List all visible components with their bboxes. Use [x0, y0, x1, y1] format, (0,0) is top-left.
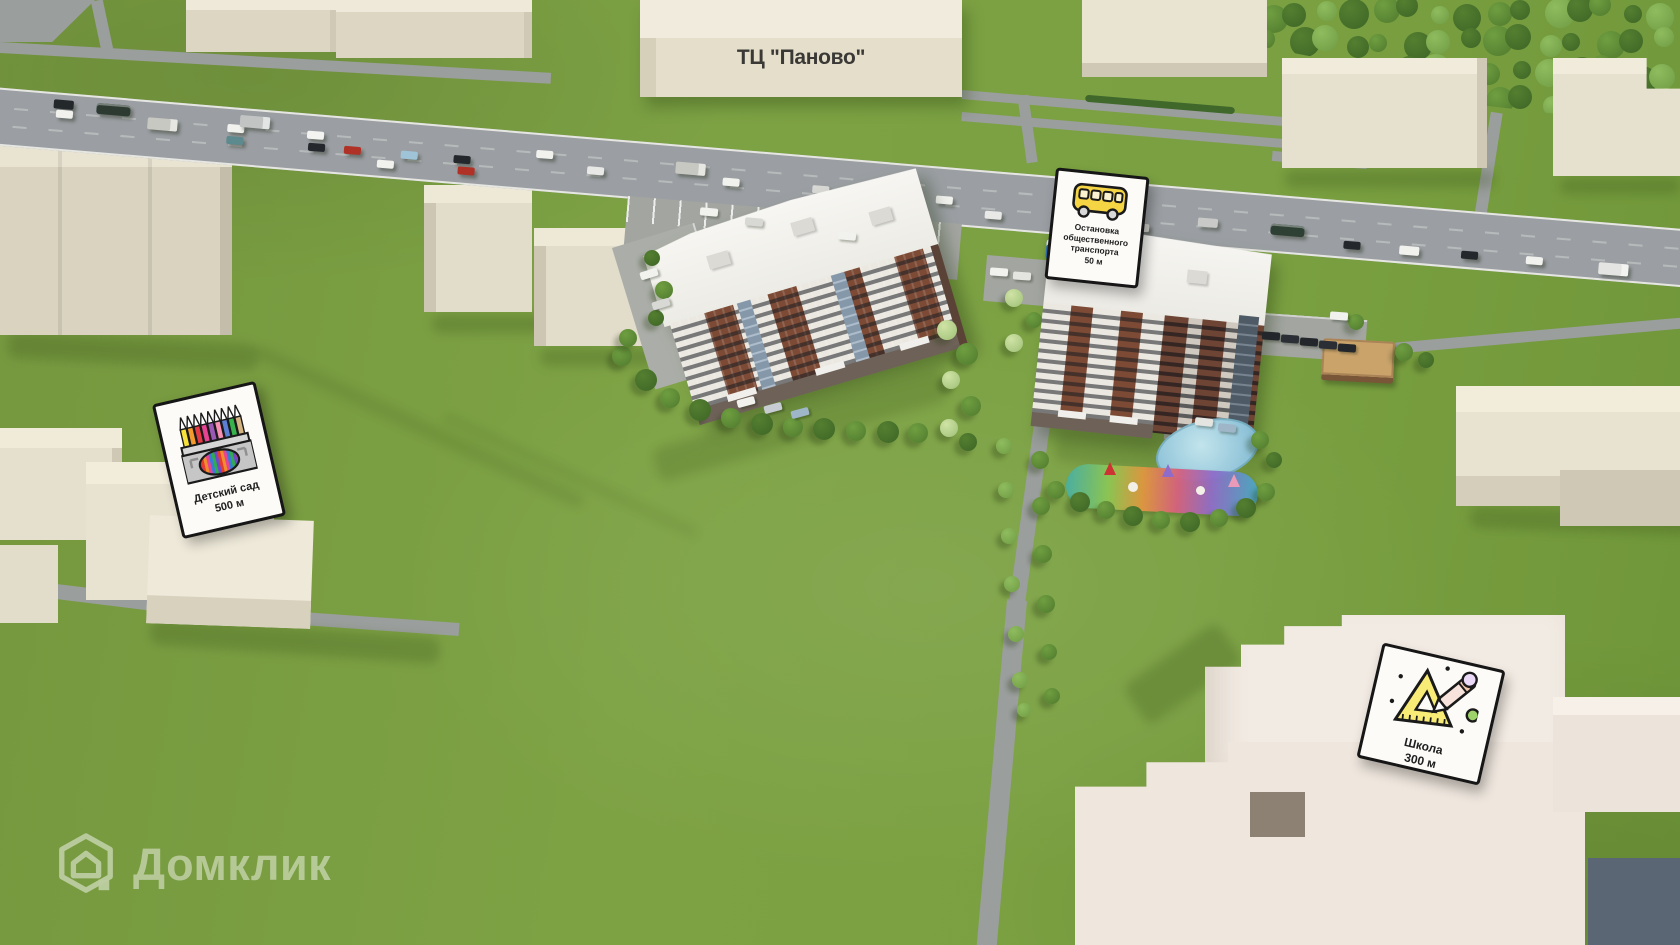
- vehicle-van: [53, 99, 74, 110]
- mall-building: ТЦ "Паново": [640, 0, 962, 97]
- tree: [1017, 703, 1031, 717]
- tree: [689, 399, 711, 421]
- building-block: [1553, 697, 1680, 812]
- forest-tree: [1236, 92, 1258, 114]
- shadow: [1285, 170, 1495, 188]
- facade-left: [1032, 303, 1165, 427]
- parked-car: [700, 207, 719, 217]
- tree: [1348, 314, 1364, 330]
- road-corner: [0, 0, 95, 42]
- forest-tree: [1347, 36, 1369, 58]
- tree: [1257, 483, 1275, 501]
- watermark: Домклик: [55, 833, 331, 897]
- forest-tree: [1649, 64, 1675, 90]
- vehicle-car: [377, 159, 395, 168]
- forest-tree: [1624, 5, 1642, 23]
- play-cone: [1228, 474, 1240, 487]
- vehicle-bus: [1270, 224, 1305, 238]
- parked-car: [1330, 311, 1349, 320]
- crayons-icon: [170, 393, 259, 489]
- entrance-canopy: [1058, 410, 1087, 420]
- vehicle-car: [400, 150, 418, 159]
- play-cone: [1104, 462, 1116, 475]
- building-block: [1560, 470, 1680, 526]
- building-block: [336, 0, 532, 58]
- vehicle-truck: [1598, 262, 1629, 276]
- watermark-text: Домклик: [133, 839, 331, 891]
- parked-car: [745, 217, 764, 227]
- entrance-canopy: [1109, 415, 1138, 425]
- building-block: [186, 0, 338, 52]
- tree: [1004, 576, 1020, 592]
- tree: [660, 388, 680, 408]
- tree: [942, 371, 960, 389]
- bus-icon: [1069, 181, 1130, 223]
- vehicle-car: [457, 166, 475, 175]
- tree: [1180, 512, 1200, 532]
- tree: [956, 343, 978, 365]
- central-path-lower: [976, 599, 1027, 945]
- tree: [1236, 498, 1256, 518]
- vehicle-van: [1198, 217, 1219, 228]
- building-block-kindergarten: [146, 515, 314, 629]
- tree: [908, 423, 928, 443]
- building-block: [0, 143, 232, 335]
- tree: [1008, 626, 1024, 642]
- parked-car: [1281, 334, 1300, 343]
- play-dot: [1196, 486, 1205, 495]
- parked-car: [1338, 343, 1357, 352]
- tree: [940, 419, 958, 437]
- roof-unit: [706, 250, 731, 270]
- tree: [1044, 688, 1060, 704]
- tree: [648, 310, 664, 326]
- forest-tree: [1461, 28, 1481, 48]
- forest-tree: [1505, 24, 1531, 50]
- building-block-school: [1075, 742, 1585, 945]
- tree: [619, 329, 637, 347]
- play-cone: [1162, 464, 1174, 477]
- tree: [1266, 452, 1282, 468]
- forest-tree: [1510, 0, 1530, 20]
- play-dot: [1128, 482, 1138, 492]
- tree: [1097, 501, 1115, 519]
- tree: [612, 346, 632, 366]
- forest-tree: [1369, 34, 1387, 52]
- forest-tree: [1282, 3, 1306, 27]
- tree: [877, 421, 899, 443]
- vehicle-car: [722, 177, 740, 186]
- forest-tree: [1513, 61, 1531, 79]
- vehicle-truck: [239, 115, 270, 129]
- vehicle-car: [936, 195, 954, 204]
- vehicle-car: [56, 109, 74, 118]
- tree: [1041, 644, 1057, 660]
- building-block-dark: [1588, 858, 1680, 945]
- vehicle-car: [1461, 251, 1479, 260]
- shadow: [1560, 178, 1680, 194]
- parked-car: [1013, 271, 1032, 280]
- vehicle-car: [307, 131, 325, 140]
- forest-tree: [1431, 6, 1449, 24]
- building-block: [424, 185, 532, 312]
- vehicle-truck: [147, 117, 178, 131]
- site-plan-render: ТЦ "Паново": [0, 0, 1680, 945]
- forest-tree: [1396, 0, 1418, 17]
- mall-label: ТЦ "Паново": [737, 46, 865, 70]
- vehicle-bus: [96, 103, 131, 117]
- path-stub: [91, 0, 113, 51]
- parked-car: [838, 231, 857, 241]
- tree: [655, 281, 673, 299]
- forest-tree: [1619, 29, 1643, 53]
- vehicle-car: [453, 155, 471, 164]
- vehicle-car: [587, 166, 605, 175]
- building-block: [1282, 58, 1487, 168]
- forest-tree: [1426, 30, 1450, 54]
- tree: [1034, 545, 1052, 563]
- parked-car: [1262, 331, 1281, 340]
- vehicle-car: [308, 143, 326, 152]
- parked-car: [1300, 337, 1319, 346]
- forest-tree: [1339, 0, 1369, 29]
- path-right-mid: [1395, 317, 1680, 353]
- tree: [644, 250, 660, 266]
- tree: [1032, 497, 1050, 515]
- tree: [751, 413, 773, 435]
- tree: [721, 408, 741, 428]
- building-facet: [148, 143, 152, 335]
- forest-tree: [1258, 90, 1276, 108]
- forest-tree: [1317, 1, 1337, 21]
- vehicle-car: [536, 150, 554, 159]
- vehicle-car: [226, 136, 244, 145]
- tree: [813, 418, 835, 440]
- forest-tree: [1508, 85, 1532, 109]
- roof-unit: [868, 206, 893, 226]
- tree: [1031, 451, 1049, 469]
- tree: [996, 438, 1012, 454]
- roof-unit: [1186, 269, 1207, 284]
- forest-tree: [1589, 0, 1611, 16]
- forest-tree: [1562, 33, 1580, 51]
- tree: [1001, 528, 1017, 544]
- tree: [1395, 343, 1413, 361]
- vehicle-van: [1399, 245, 1420, 256]
- bus-stop-card: Остановка общественного транспорта 50 м: [1044, 167, 1149, 288]
- tree: [1026, 312, 1042, 328]
- tree: [1251, 431, 1269, 449]
- tree: [1037, 595, 1055, 613]
- vehicle-truck: [675, 162, 706, 176]
- tree: [998, 482, 1014, 498]
- vehicle-car: [1526, 256, 1544, 265]
- tree: [961, 396, 981, 416]
- forest-tree: [1540, 35, 1562, 57]
- tree: [1210, 509, 1228, 527]
- parked-car: [1319, 340, 1338, 349]
- tree: [1005, 334, 1023, 352]
- forest-tree: [1488, 2, 1512, 26]
- tree: [1012, 672, 1028, 688]
- vehicle-car: [344, 146, 362, 155]
- tree: [1123, 506, 1143, 526]
- roof-unit: [790, 217, 815, 237]
- tree: [959, 433, 977, 451]
- shadow: [254, 345, 586, 510]
- tree: [635, 369, 657, 391]
- tree: [846, 421, 866, 441]
- vehicle-car: [1343, 241, 1361, 250]
- tree: [1418, 352, 1434, 368]
- forest-tree: [1312, 25, 1338, 51]
- tree: [1047, 481, 1065, 499]
- tree: [1152, 511, 1170, 529]
- tree: [1005, 289, 1023, 307]
- building-block: [1082, 0, 1267, 77]
- tree: [1070, 492, 1090, 512]
- tree: [937, 320, 957, 340]
- parked-car: [990, 267, 1009, 276]
- building-facet: [58, 143, 62, 335]
- building-block-kindergarten: [0, 545, 58, 623]
- shadow: [7, 331, 258, 370]
- vehicle-car: [984, 211, 1002, 220]
- courtyard-shadow: [1250, 792, 1305, 837]
- domclick-logo-icon: [55, 833, 117, 897]
- set-square-pencil-icon: [1381, 653, 1487, 746]
- forest-tree: [1654, 27, 1674, 47]
- tree: [783, 417, 803, 437]
